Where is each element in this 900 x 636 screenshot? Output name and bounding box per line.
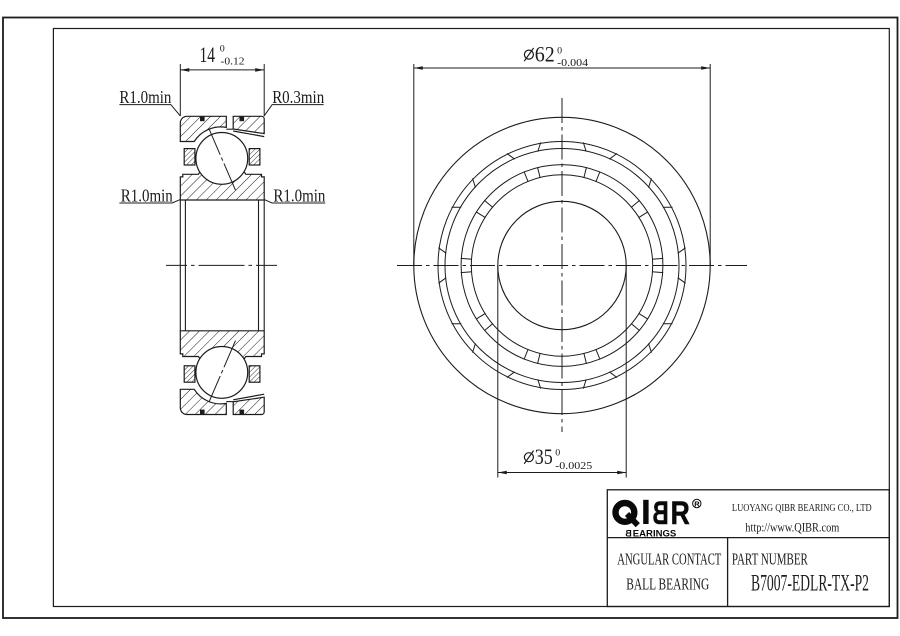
svg-text:R1.0min: R1.0min xyxy=(119,87,171,107)
svg-text:-0.0025: -0.0025 xyxy=(555,461,592,472)
svg-text:0: 0 xyxy=(220,45,225,55)
svg-text:R: R xyxy=(694,499,700,508)
svg-text:R: R xyxy=(671,495,690,531)
svg-text:14: 14 xyxy=(200,42,216,67)
svg-text:0: 0 xyxy=(557,46,562,56)
svg-text:LUOYANG QIBR BEARING CO., LTD: LUOYANG QIBR BEARING CO., LTD xyxy=(732,502,872,514)
svg-text:BALL BEARING: BALL BEARING xyxy=(626,575,709,594)
svg-text:B7007-EDLR-TX-P2: B7007-EDLR-TX-P2 xyxy=(751,571,869,596)
svg-text:35: 35 xyxy=(535,444,553,469)
svg-text:R1.0min: R1.0min xyxy=(121,185,173,205)
svg-text:EARINGS: EARINGS xyxy=(633,528,677,538)
svg-text:62: 62 xyxy=(535,42,555,67)
svg-text:-0.12: -0.12 xyxy=(221,57,245,68)
svg-text:R0.3min: R0.3min xyxy=(272,87,324,107)
svg-text:B: B xyxy=(625,528,632,538)
svg-text:http://www.QIBR.com: http://www.QIBR.com xyxy=(745,520,839,534)
svg-text:R1.0min: R1.0min xyxy=(273,185,325,205)
svg-text:B: B xyxy=(652,495,668,531)
svg-text:PART NUMBER: PART NUMBER xyxy=(732,549,808,568)
svg-text:ANGULAR CONTACT: ANGULAR CONTACT xyxy=(617,549,721,568)
svg-text:0: 0 xyxy=(555,448,560,458)
svg-text:-0.004: -0.004 xyxy=(557,58,589,69)
